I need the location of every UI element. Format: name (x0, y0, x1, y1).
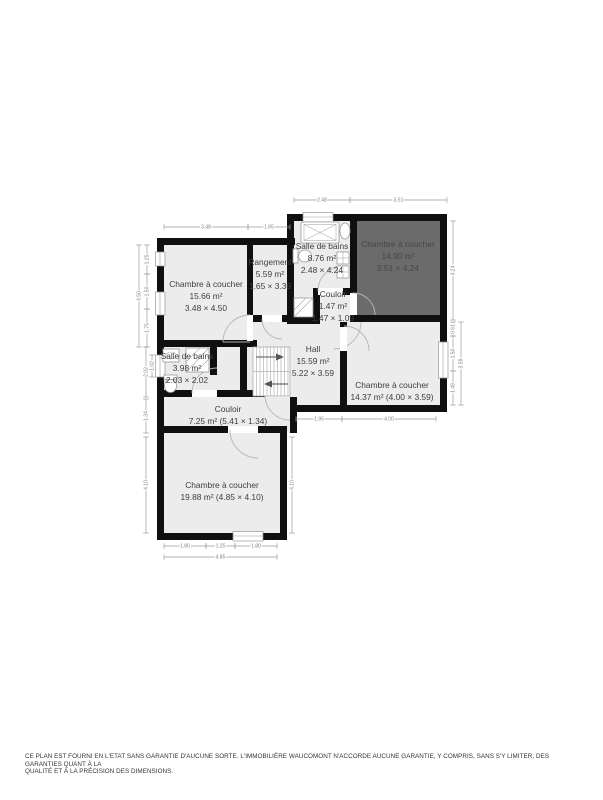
disclaimer-line-2: QUALITÉ ET À LA PRÉCISION DES DIMENSIONS… (25, 768, 575, 776)
room-label-line: 1.47 m² (319, 301, 348, 311)
dimension: 1.48 (450, 371, 457, 405)
dimension: 1.75 (144, 309, 151, 347)
dimension: 1.34 (143, 399, 150, 433)
dim-label: 3.51 (394, 198, 404, 204)
window-icon (156, 292, 166, 315)
dimension: 4.00 (342, 416, 436, 423)
dim-label: 1.48 (451, 383, 457, 393)
dimension: 1.25 (144, 245, 151, 274)
dim-label: 2.48 (317, 198, 327, 204)
dimension: 4.85 (164, 554, 277, 561)
room-label-line: 5.59 m² (256, 269, 285, 279)
dim-label: 1.34 (144, 411, 150, 421)
dim-label: 1.80 (251, 544, 261, 550)
room-label-line: 8.76 m² (308, 253, 337, 263)
room-label-line: 14.90 m² (381, 251, 414, 261)
dim-label: 1.50 (145, 286, 151, 296)
dim-label: 1.80 (180, 544, 190, 550)
dim-label: 3.48 (201, 225, 211, 231)
room-label-line: Couloir (320, 289, 347, 299)
room-label-line: Chambre à coucher (361, 239, 435, 249)
window-icon (156, 252, 166, 266)
room-label-line: Hall (306, 344, 321, 354)
dim-label: 1.50 (451, 348, 457, 358)
room-label-line: 15.66 m² (189, 291, 222, 301)
dim-label: 1.95 (314, 417, 324, 423)
room-label-line: Chambre à coucher (355, 380, 429, 390)
dim-label: 4.50 (137, 291, 143, 301)
dim-label: 4.00 (384, 417, 394, 423)
disclaimer-line-1: CE PLAN EST FOURNI EN L'ETAT SANS GARANT… (25, 753, 575, 768)
dim-label: 4.10 (144, 480, 150, 490)
dimension: 0.61 (450, 322, 457, 336)
dimension: 1.50 (144, 274, 151, 309)
dimension: 3.59 (458, 322, 465, 405)
dimension: 1.95 (296, 416, 342, 423)
shower-icon (294, 298, 313, 317)
room-label-line: 1.65 × 3.39 (249, 281, 291, 291)
window-icon (233, 532, 263, 542)
room-label-line: Chambre à coucher (169, 279, 243, 289)
dim-label: 1.25 (145, 254, 151, 264)
window-icon (303, 213, 333, 223)
dim-label: 3.59 (459, 358, 465, 368)
room-label-line: 2.48 × 4.24 (301, 265, 343, 275)
room-label-line: Couloir (215, 404, 242, 414)
dimension: 2.48 (294, 197, 350, 204)
dim-label: 1.02 (150, 361, 156, 371)
dim-label: 2.02 (144, 367, 150, 377)
dimension: 1.80 (164, 543, 206, 550)
room-label-line: 14.37 m² (4.00 × 3.59) (350, 392, 433, 402)
dimension: 1.65 (248, 224, 290, 231)
dim-label: 4.10 (290, 480, 296, 490)
room-label-line: 3.48 × 4.50 (185, 303, 227, 313)
dimension: 4.10 (289, 437, 296, 533)
disclaimer: CE PLAN EST FOURNI EN L'ETAT SANS GARANT… (25, 753, 575, 776)
room-label-line: 3.98 m² (173, 363, 202, 373)
dimension: 3.51 (350, 197, 447, 204)
dim-label: 1.75 (145, 323, 151, 333)
dimension: 1.50 (450, 336, 457, 371)
room-label-line: Salle de bains (296, 241, 349, 251)
page: 2.483.513.481.651.251.501.754.501.022.02… (0, 0, 603, 800)
window-icon (439, 342, 449, 378)
dimension: 1.02 (149, 355, 156, 377)
room-label-line: 5.22 × 3.59 (292, 368, 334, 378)
floor-plan-svg: 2.483.513.481.651.251.501.754.501.022.02… (0, 0, 603, 800)
dim-label: 4.24 (451, 265, 457, 275)
dimension: 1.80 (235, 543, 277, 550)
dimension: 2.02 (143, 347, 150, 397)
stairs (253, 347, 290, 396)
room-label-line: Salle de bains (161, 351, 214, 361)
room-label-line: 2.03 × 2.02 (166, 375, 208, 385)
dim-label: 1.25 (216, 544, 226, 550)
room-label-line: 19.88 m² (4.85 × 4.10) (180, 492, 263, 502)
dimension: 4.10 (143, 437, 150, 533)
dimension: 1.25 (206, 543, 235, 550)
dimension: 3.48 (164, 224, 248, 231)
dim-label: 0.61 (451, 324, 457, 334)
room-label-line: 7.25 m² (5.41 × 1.34) (189, 416, 268, 426)
dim-label: 1.65 (264, 225, 274, 231)
room-label-line: 3.51 × 4.24 (377, 263, 419, 273)
room-label-line: 1.47 × 1.09 (312, 313, 354, 323)
dimension: 4.24 (450, 221, 457, 320)
room-label-line: 15.59 m² (296, 356, 329, 366)
dim-label: 4.85 (216, 555, 226, 561)
room-label-line: Chambre à coucher (185, 480, 259, 490)
room-label-line: Rangement (248, 257, 292, 267)
dimension: 4.50 (136, 245, 143, 347)
